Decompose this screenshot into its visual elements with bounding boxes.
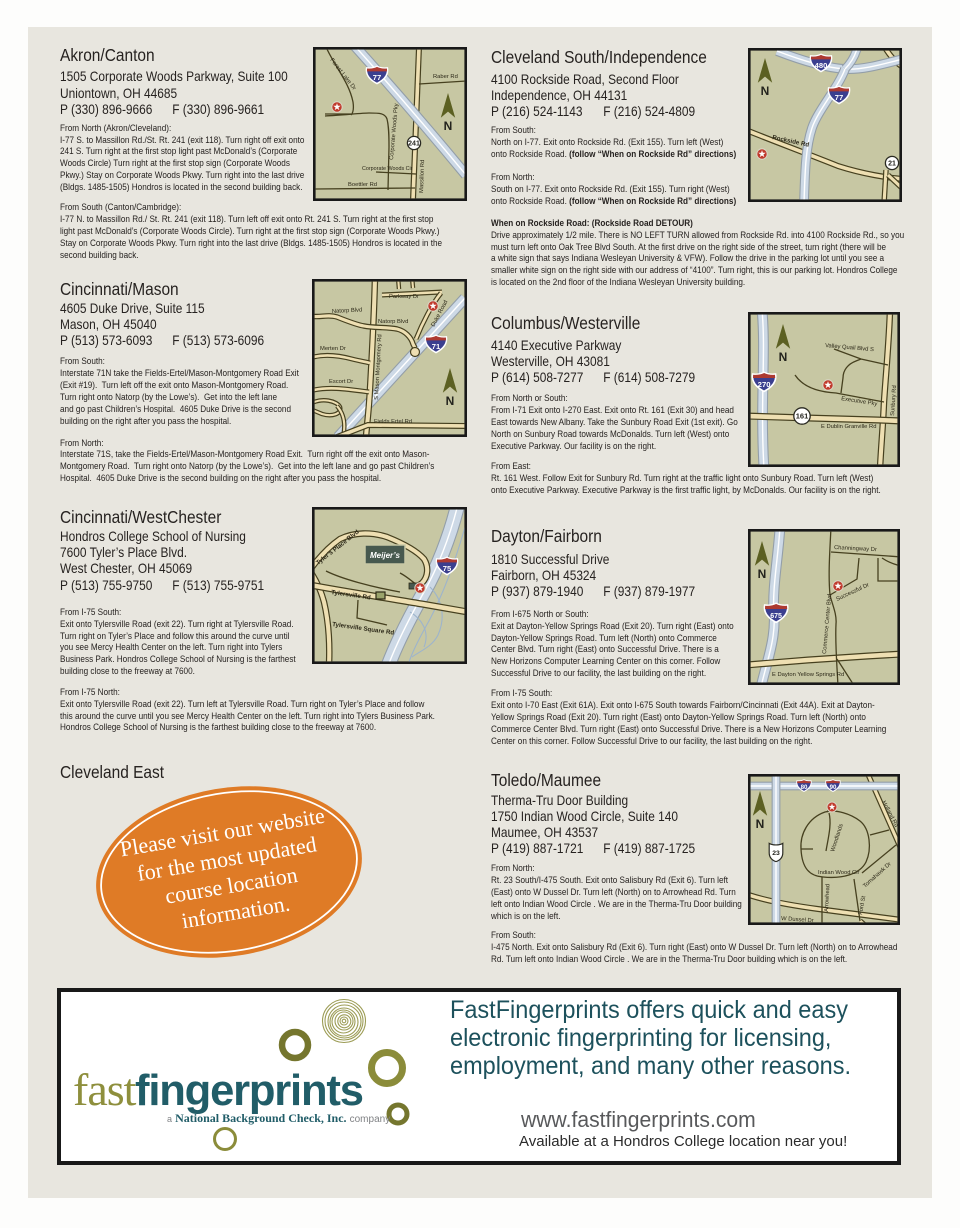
svg-text:Massillon Rd: Massillon Rd — [419, 159, 426, 192]
svg-text:Indian Wood Cir: Indian Wood Cir — [818, 870, 860, 876]
svg-text:Natorp Blvd: Natorp Blvd — [378, 319, 408, 325]
svg-text:Meijer’s: Meijer’s — [370, 551, 400, 560]
svg-text:80: 80 — [801, 784, 808, 791]
svg-text:241: 241 — [408, 140, 420, 147]
svg-text:Parkway Dr: Parkway Dr — [389, 294, 419, 300]
svg-text:N: N — [756, 817, 765, 831]
svg-text:23: 23 — [772, 850, 780, 857]
svg-text:77: 77 — [834, 93, 842, 102]
svg-text:21: 21 — [888, 161, 896, 168]
svg-text:Merten Dr: Merten Dr — [320, 346, 346, 352]
svg-text:Escort Dr: Escort Dr — [329, 379, 353, 385]
svg-text:77: 77 — [373, 72, 381, 81]
svg-text:Corporate Woods Cir: Corporate Woods Cir — [362, 166, 413, 172]
svg-text:Raber Rd: Raber Rd — [433, 74, 458, 80]
svg-text:270: 270 — [758, 380, 771, 389]
svg-text:E Dublin Granville Rd: E Dublin Granville Rd — [821, 424, 876, 430]
svg-text:E Dayton Yellow Springs Rd: E Dayton Yellow Springs Rd — [772, 672, 844, 678]
svg-text:N: N — [779, 350, 788, 364]
svg-text:90: 90 — [830, 784, 837, 791]
svg-text:N: N — [444, 119, 453, 133]
svg-text:N: N — [760, 84, 769, 98]
svg-text:N: N — [758, 567, 767, 581]
svg-text:Fields Ertel Rd: Fields Ertel Rd — [374, 419, 412, 425]
svg-text:Boettler Rd: Boettler Rd — [348, 182, 377, 188]
svg-text:71: 71 — [432, 342, 441, 351]
svg-text:675: 675 — [770, 613, 782, 620]
svg-text:480: 480 — [814, 61, 827, 70]
svg-text:75: 75 — [443, 564, 452, 573]
svg-text:N: N — [446, 394, 455, 408]
svg-text:161: 161 — [796, 412, 809, 421]
